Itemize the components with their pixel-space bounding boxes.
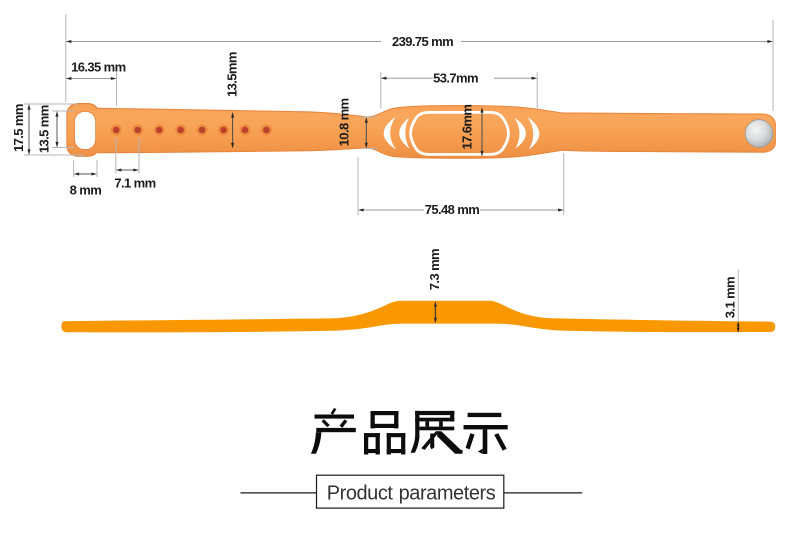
svg-text:7.1 mm: 7.1 mm (114, 176, 155, 191)
svg-text:13.5mm: 13.5mm (225, 52, 240, 97)
svg-text:8 mm: 8 mm (70, 183, 102, 198)
svg-text:17.6mm: 17.6mm (460, 105, 475, 150)
svg-text:Product parameters: Product parameters (327, 483, 496, 505)
svg-text:17.5 mm: 17.5 mm (11, 104, 26, 152)
svg-text:75.48 mm: 75.48 mm (425, 202, 480, 217)
svg-text:10.8 mm: 10.8 mm (337, 98, 352, 146)
svg-text:53.7mm: 53.7mm (433, 71, 478, 86)
svg-text:239.75 mm: 239.75 mm (392, 34, 453, 49)
svg-text:3.1 mm: 3.1 mm (723, 277, 738, 318)
svg-text:13.5 mm: 13.5 mm (37, 105, 52, 153)
svg-text:7.3 mm: 7.3 mm (427, 249, 442, 290)
svg-text:16.35 mm: 16.35 mm (71, 60, 126, 75)
